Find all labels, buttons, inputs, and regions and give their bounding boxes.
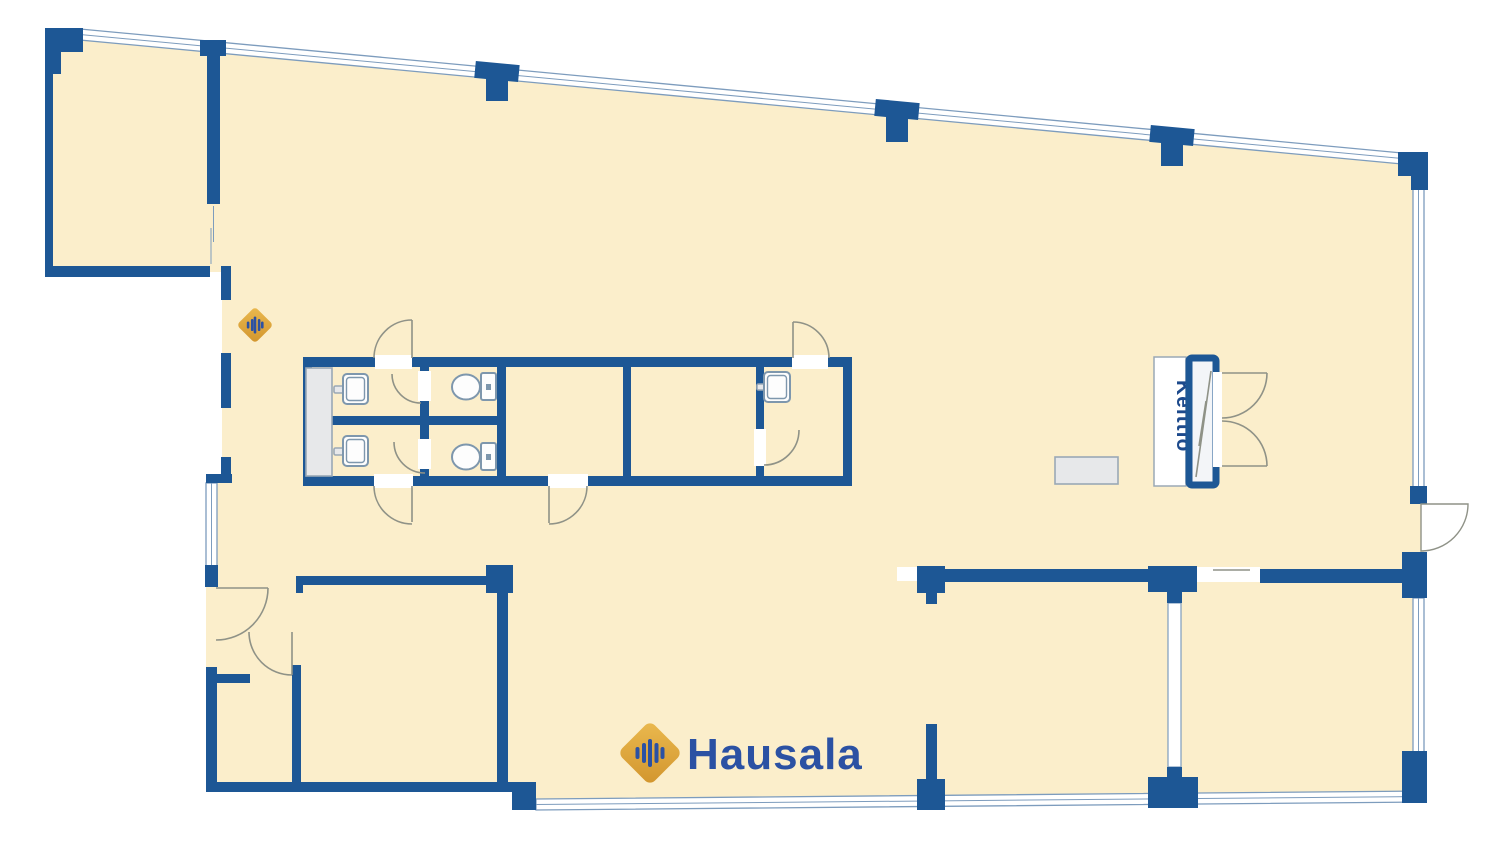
toilet-top <box>452 373 496 400</box>
hausala-logo: Hausala <box>617 720 862 785</box>
window-band-right <box>1413 189 1424 754</box>
bathroom-counter <box>306 368 332 476</box>
floor-plan-svg: Keittiö Hausala <box>0 0 1500 860</box>
floor-plan-page: Keittiö Hausala <box>0 0 1500 860</box>
hausala-logo-text: Hausala <box>687 730 863 779</box>
toilet-bottom <box>452 443 496 470</box>
kitchen-table <box>1055 457 1118 484</box>
glass-partition <box>1167 592 1182 778</box>
window-left-lower <box>206 483 217 567</box>
exterior-right-door <box>1421 504 1468 551</box>
